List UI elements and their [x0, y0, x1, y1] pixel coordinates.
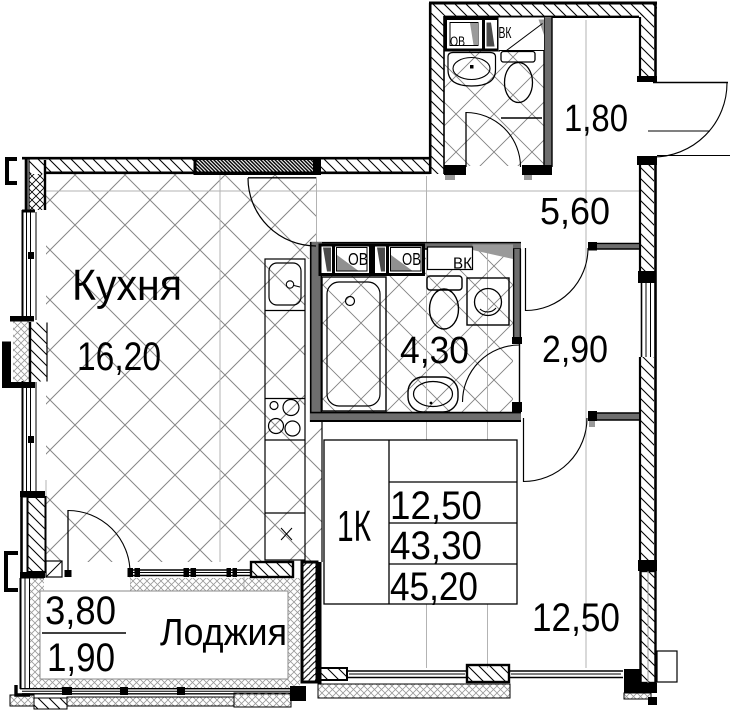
svg-text:1,80: 1,80 [564, 98, 628, 140]
svg-text:45,20: 45,20 [390, 565, 478, 609]
svg-text:ВК: ВК [453, 256, 473, 273]
svg-text:ВК: ВК [499, 25, 512, 42]
svg-text:12,50: 12,50 [532, 596, 620, 640]
svg-text:ОВ: ОВ [450, 34, 465, 49]
svg-text:16,20: 16,20 [77, 335, 161, 379]
svg-text:ОВ: ОВ [348, 249, 368, 269]
svg-text:12,50: 12,50 [390, 484, 482, 528]
svg-text:1,90: 1,90 [47, 636, 115, 680]
svg-text:2,90: 2,90 [542, 329, 608, 371]
svg-text:Кухня: Кухня [72, 261, 182, 310]
svg-text:5,60: 5,60 [540, 191, 610, 233]
svg-text:4,30: 4,30 [400, 330, 469, 372]
svg-text:Лоджия: Лоджия [160, 612, 287, 654]
svg-text:43,30: 43,30 [390, 524, 482, 568]
svg-text:3,80: 3,80 [45, 589, 116, 633]
svg-text:ОВ: ОВ [402, 249, 421, 269]
svg-text:1К: 1К [337, 502, 371, 551]
